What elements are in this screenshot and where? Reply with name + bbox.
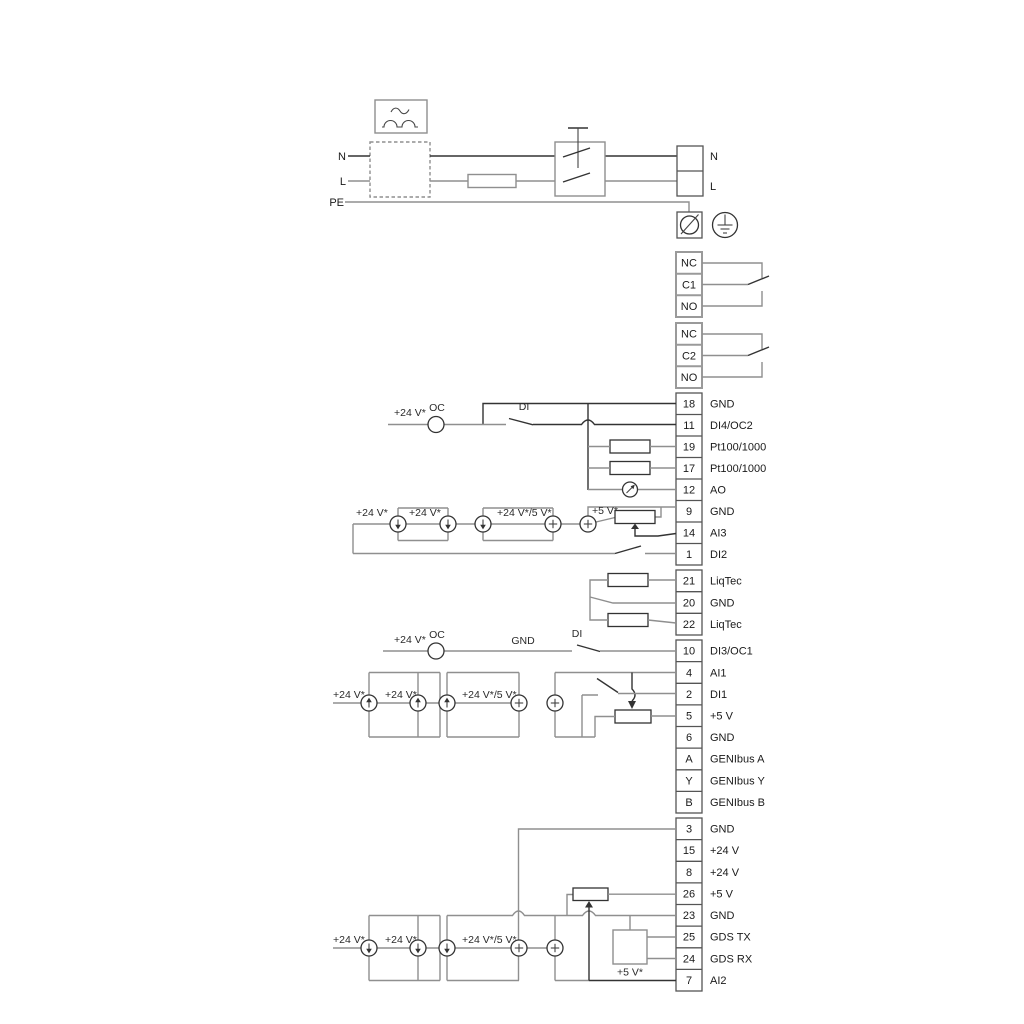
relay2-contact	[702, 334, 769, 377]
terminal-2: 2	[686, 689, 692, 701]
pot-wiper-arrow	[631, 524, 639, 530]
analog-output-meter-icon	[623, 482, 638, 497]
terminal-15: 15	[683, 845, 695, 857]
terminal-14-label: AI3	[710, 528, 727, 540]
terminal-26-label: +5 V	[710, 889, 734, 901]
mains-section: N L PE N L	[329, 100, 737, 238]
terminal-8-label: +24 V	[710, 867, 740, 879]
label-n-left: N	[338, 151, 346, 163]
pt100-resistor-icon-2	[610, 462, 650, 475]
current-sink-icon	[440, 516, 456, 532]
relay-2: NC C2 NO	[676, 323, 769, 388]
di2-switch-blade	[615, 546, 641, 554]
terminal-21-label: LiqTec	[710, 576, 742, 588]
terminal-1: 1	[686, 549, 692, 561]
block-d-circuit: +24 V* +24 V* +24 V*/5 V* +5 V*	[333, 829, 676, 981]
di-label-2: DI	[572, 628, 583, 640]
liqtec-resistor-icon-2	[608, 614, 648, 627]
terminal-4: 4	[686, 667, 692, 679]
v5-label-2: +5 V*	[617, 967, 643, 979]
current-source-icon	[439, 695, 455, 711]
voltage-source-icon	[547, 695, 563, 711]
block-c-circuit: +24 V* OC GND DI +24 V* +24 V* +24 V*/5 …	[333, 628, 676, 737]
relay2-no: NO	[681, 372, 698, 384]
terminal-19-label: Pt100/1000	[710, 442, 766, 454]
oc-label-2: OC	[429, 629, 445, 641]
main-switch	[555, 128, 605, 196]
terminal-block-c: 10 4 2 5 6 A Y B DI3/OC1 AI1 DI1 +5 V GN…	[676, 640, 765, 813]
terminal-4-label: AI1	[710, 667, 727, 679]
terminal-bb-label: GENIbus B	[710, 797, 765, 809]
v24-label-2: +24 V*	[356, 507, 388, 519]
di1-switch-blade	[597, 679, 618, 693]
terminal-block-b: 21 20 22 LiqTec GND LiqTec	[676, 570, 742, 635]
current-sink-icon	[439, 940, 455, 956]
terminal-20-label: GND	[710, 597, 735, 609]
oc-label-1: OC	[429, 402, 445, 414]
pot-wiper-arrow-2	[628, 701, 636, 709]
relay1-contact	[702, 263, 769, 306]
terminal-22: 22	[683, 619, 695, 631]
v24-label-6: +24 V*	[385, 689, 417, 701]
terminal-24: 24	[683, 953, 695, 965]
terminal-17: 17	[683, 463, 695, 475]
current-sink-icon	[475, 516, 491, 532]
terminal-7-label: AI2	[710, 975, 727, 987]
terminal-bb: B	[685, 797, 692, 809]
terminal-10: 10	[683, 646, 695, 658]
potentiometer-icon-ai1	[615, 710, 651, 723]
terminal-25: 25	[683, 932, 695, 944]
terminal-y-label: GENIbus Y	[710, 775, 765, 787]
wiring-diagram-page: N L PE N L	[0, 0, 1024, 1024]
earth-ground-icon	[713, 213, 738, 238]
terminal-3: 3	[686, 824, 692, 836]
terminal-23-label: GND	[710, 910, 735, 922]
v24v5-label-1: +24 V*/5 V*	[497, 507, 552, 519]
terminal-block-nl	[677, 146, 703, 196]
terminal-20: 20	[683, 597, 695, 609]
terminal-3-label: GND	[710, 824, 735, 836]
relay2-c2: C2	[682, 350, 696, 362]
relay1-nc: NC	[681, 258, 697, 270]
v24-label-7: +24 V*	[333, 934, 365, 946]
relay1-c1: C1	[682, 279, 696, 291]
terminal-15-label: +24 V	[710, 845, 740, 857]
relay-1: NC C1 NO	[676, 252, 769, 317]
liqtec-resistor-icon-1	[608, 574, 648, 587]
terminal-8: 8	[686, 867, 692, 879]
ac-source-box	[375, 100, 427, 133]
relay1-no: NO	[681, 301, 698, 313]
terminal-a-label: GENIbus A	[710, 754, 765, 766]
label-l-left: L	[340, 176, 346, 188]
terminal-y: Y	[685, 775, 693, 787]
terminal-12-label: AO	[710, 485, 726, 497]
emc-filter-box	[370, 142, 430, 197]
open-collector-icon-2	[428, 643, 444, 659]
terminal-14: 14	[683, 528, 695, 540]
terminal-17-label: Pt100/1000	[710, 463, 766, 475]
potentiometer-icon-ai3	[615, 511, 655, 524]
liqtec-circuit	[590, 574, 676, 627]
terminal-23: 23	[683, 910, 695, 922]
terminal-21: 21	[683, 576, 695, 588]
fuse-icon	[468, 175, 516, 188]
v5-label-1: +5 V*	[592, 505, 618, 517]
v24-label-5: +24 V*	[333, 689, 365, 701]
label-n-right: N	[710, 151, 718, 163]
block-a-circuit: +24 V* OC DI +24 V* +24 V* +24 V*/5 V* +…	[353, 401, 676, 554]
voltage-source-icon	[580, 516, 596, 532]
terminal-25-label: GDS TX	[710, 932, 751, 944]
gds-sensor-box	[613, 930, 647, 964]
v24v5-label-2: +24 V*/5 V*	[462, 689, 517, 701]
di3-switch-blade	[577, 645, 600, 652]
label-l-right: L	[710, 181, 716, 193]
v24-label-4: +24 V*	[394, 634, 426, 646]
terminal-7: 7	[686, 975, 692, 987]
terminal-18: 18	[683, 399, 695, 411]
gnd-label-1: GND	[511, 635, 535, 647]
di-label-1: DI	[519, 401, 530, 413]
terminal-22-label: LiqTec	[710, 619, 742, 631]
terminal-block-a: 18 11 19 17 12 9 14 1 GND DI4/OC2 Pt100/…	[676, 393, 766, 565]
di4-switch-blade	[509, 419, 533, 425]
terminal-26: 26	[683, 889, 695, 901]
potentiometer-icon-ai2	[573, 888, 608, 901]
terminal-11: 11	[683, 420, 694, 432]
terminal-5: 5	[686, 711, 692, 723]
wiring-diagram: N L PE N L	[0, 0, 1024, 1024]
terminal-24-label: GDS RX	[710, 953, 753, 965]
terminal-11-label: DI4/OC2	[710, 420, 753, 432]
terminal-2-label: DI1	[710, 689, 727, 701]
v24v5-label-3: +24 V*/5 V*	[462, 934, 517, 946]
terminal-10-label: DI3/OC1	[710, 646, 753, 658]
terminal-block-d: 3 15 8 26 23 25 24 7 GND +24 V +24 V +5 …	[676, 818, 753, 991]
terminal-6-label: GND	[710, 732, 735, 744]
label-pe: PE	[329, 197, 344, 209]
mains-wires	[345, 156, 689, 212]
open-collector-icon	[428, 417, 444, 433]
v24-label-8: +24 V*	[385, 934, 417, 946]
terminal-6: 6	[686, 732, 692, 744]
terminal-9: 9	[686, 506, 692, 518]
terminal-9-label: GND	[710, 506, 735, 518]
relay2-nc: NC	[681, 329, 697, 341]
terminal-1-label: DI2	[710, 549, 727, 561]
pt100-resistor-icon-1	[610, 440, 650, 453]
pe-screw-terminal-icon	[677, 212, 702, 238]
v24-label-1: +24 V*	[394, 407, 426, 419]
terminal-5-label: +5 V	[710, 711, 734, 723]
terminal-12: 12	[683, 485, 695, 497]
current-sink-icon	[390, 516, 406, 532]
v24-label-3: +24 V*	[409, 507, 441, 519]
pot-wiper-arrow-3	[585, 901, 593, 908]
terminal-19: 19	[683, 442, 695, 454]
voltage-source-icon	[547, 940, 563, 956]
terminal-a: A	[685, 754, 693, 766]
terminal-18-label: GND	[710, 399, 735, 411]
